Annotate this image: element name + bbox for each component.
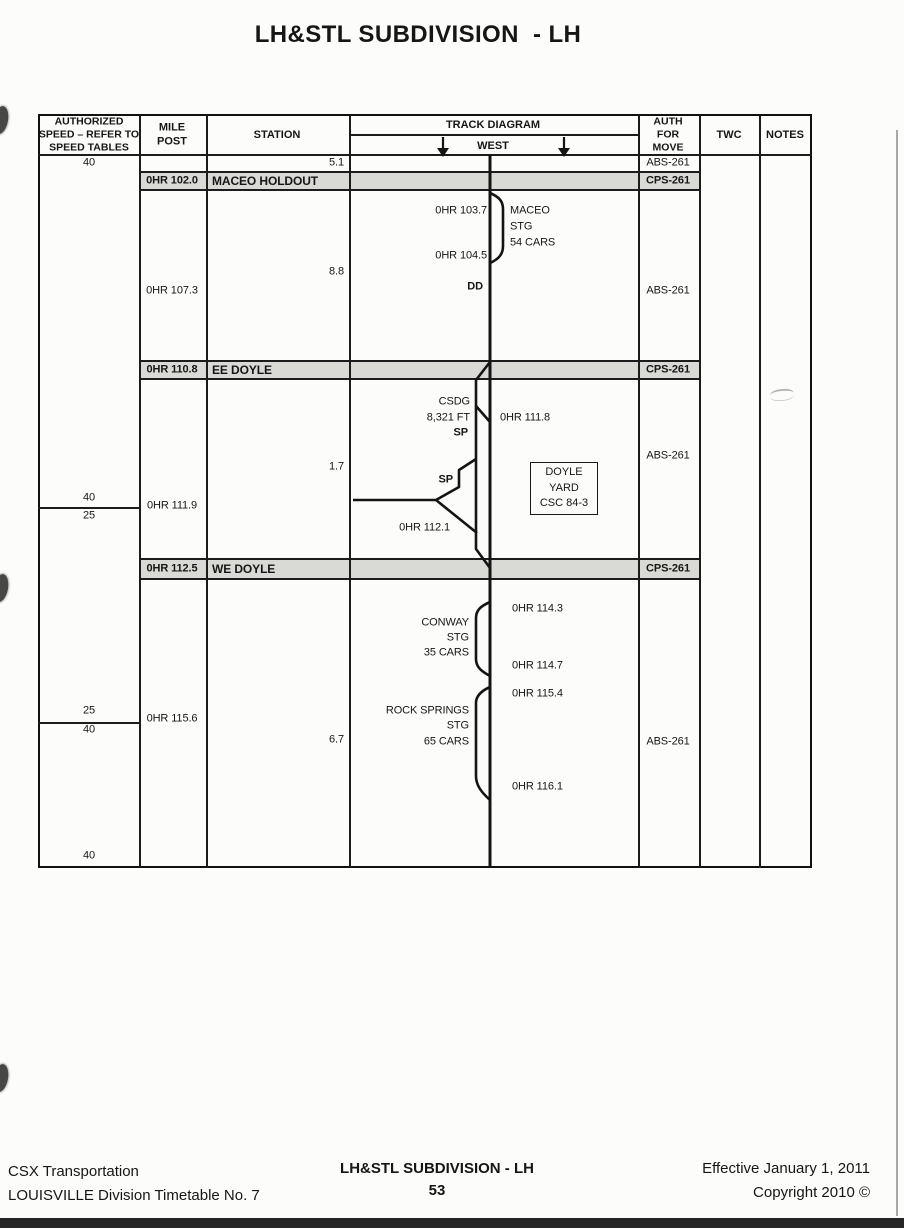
- divider-mile-station: [206, 115, 208, 868]
- band-line: [139, 558, 700, 560]
- binder-hole-mark: [0, 1063, 10, 1093]
- scan-smudge: [769, 388, 794, 402]
- siding-type: STG: [447, 720, 469, 733]
- rock-springs-siding-track: [476, 687, 490, 800]
- milepost-label: 0HR 114.3: [512, 603, 563, 616]
- station-column-header: STATION: [254, 128, 301, 142]
- distance-value: 1.7: [329, 461, 344, 474]
- binder-hole-mark: [0, 105, 10, 135]
- auth-for-move-value: ABS-261: [646, 450, 689, 463]
- table-border-right: [810, 114, 812, 868]
- band-line: [139, 189, 700, 191]
- divider-twc-notes: [759, 115, 761, 868]
- footer-company: CSX Transportation: [8, 1163, 139, 1181]
- band-line: [139, 360, 700, 362]
- milepost-label: 0HR 116.1: [512, 781, 563, 794]
- siding-length: 8,321 FT: [427, 412, 470, 425]
- doyle-siding-track: [476, 362, 490, 568]
- mile-post-value: 0HR 107.3: [146, 285, 198, 298]
- speed-value-40-below-divider2: 40: [83, 724, 95, 737]
- switch-point-label: SP: [454, 427, 468, 440]
- doyle-yard-box: DOYLE YARD CSC 84-3: [530, 462, 598, 515]
- station-mile-post: 0HR 112.5: [146, 563, 197, 576]
- yard-box-line: YARD: [549, 481, 579, 496]
- speed-value-25-below-divider1: 25: [83, 510, 95, 523]
- station-mile-post: 0HR 102.0: [146, 175, 198, 188]
- notes-column-header: NOTES: [766, 128, 804, 142]
- footer-effective-date: Effective January 1, 2011: [702, 1160, 870, 1178]
- binder-hole-mark: [0, 573, 10, 603]
- scan-edge-right: [896, 130, 898, 1216]
- siding-capacity: 54 CARS: [510, 237, 555, 250]
- auth-for-move-value: CPS-261: [646, 364, 690, 377]
- twc-column-header: TWC: [716, 128, 741, 142]
- siding-capacity: 35 CARS: [424, 647, 469, 660]
- siding-type: STG: [510, 221, 532, 234]
- band-line: [139, 378, 700, 380]
- table-border-left: [38, 114, 40, 868]
- distance-value: 5.1: [329, 157, 344, 170]
- band-line: [139, 171, 700, 173]
- siding-name: MACEO: [510, 205, 550, 218]
- auth-for-move-value: ABS-261: [646, 285, 689, 298]
- switch-point-label: SP: [439, 474, 453, 487]
- divider-speed-mile: [139, 115, 141, 868]
- timetable-page: LH&STL SUBDIVISION - LH AUTHORIZED SPEED…: [0, 0, 904, 1228]
- divider-station-track: [349, 115, 351, 868]
- siding-capacity: 65 CARS: [424, 736, 469, 749]
- yard-box-line: DOYLE: [545, 465, 582, 480]
- milepost-label: 0HR 111.8: [500, 412, 550, 425]
- band-line: [139, 578, 700, 580]
- west-arrow-right-icon: [558, 148, 570, 157]
- siding-name: CONWAY: [421, 617, 469, 630]
- maceo-siding-track: [490, 193, 503, 263]
- milepost-label: 0HR 104.5: [435, 250, 487, 263]
- milepost-label: 0HR 103.7: [435, 205, 487, 218]
- mile-post-value: 0HR 115.6: [147, 713, 198, 726]
- siding-name: CSDG: [439, 396, 470, 409]
- header-bottom-line: [38, 154, 812, 156]
- doyle-crossover-track: [476, 406, 490, 422]
- speed-value-25-above-divider2: 25: [83, 705, 95, 718]
- footer-subdivision: LH&STL SUBDIVISION - LH: [340, 1160, 534, 1178]
- distance-value: 6.7: [329, 734, 344, 747]
- milepost-label: 0HR 112.1: [399, 522, 450, 535]
- station-name: EE DOYLE: [212, 363, 272, 377]
- speed-value-40-above-divider1: 40: [83, 492, 95, 505]
- direction-header-west: WEST: [477, 139, 509, 153]
- defect-detector-label: DD: [467, 281, 483, 294]
- table-border-bottom: [38, 866, 812, 868]
- divider-auth-twc: [699, 115, 701, 868]
- station-name: MACEO HOLDOUT: [212, 174, 318, 188]
- mile-post-column-header: MILE POST: [157, 121, 187, 150]
- footer-copyright: Copyright 2010 ©: [753, 1184, 870, 1202]
- auth-for-move-value: ABS-261: [646, 157, 689, 170]
- station-mile-post: 0HR 110.8: [146, 364, 197, 377]
- siding-type: STG: [447, 632, 469, 645]
- track-diagram-subheader-line: [349, 134, 638, 136]
- speed-value-top: 40: [83, 157, 95, 170]
- auth-for-move-value: CPS-261: [646, 175, 690, 188]
- track-diagram-column-header: TRACK DIAGRAM: [446, 118, 540, 132]
- auth-for-move-column-header: AUTH FOR MOVE: [653, 115, 684, 154]
- auth-for-move-value: ABS-261: [646, 736, 689, 749]
- siding-name: ROCK SPRINGS: [386, 705, 469, 718]
- footer-page-number: 53: [429, 1182, 446, 1200]
- table-border-top: [38, 114, 812, 116]
- milepost-label: 0HR 114.7: [512, 660, 563, 673]
- mile-post-value: 0HR 111.9: [147, 500, 197, 513]
- auth-for-move-value: CPS-261: [646, 563, 690, 576]
- station-name: WE DOYLE: [212, 562, 275, 576]
- speed-value-bottom: 40: [83, 850, 95, 863]
- scan-edge-bottom: [0, 1218, 904, 1228]
- milepost-label: 0HR 115.4: [512, 688, 563, 701]
- distance-value: 8.8: [329, 266, 344, 279]
- speed-column-header: AUTHORIZED SPEED – REFER TO SPEED TABLES: [39, 115, 139, 154]
- speed-divider-1: [38, 507, 140, 509]
- footer-timetable: LOUISVILLE Division Timetable No. 7: [8, 1187, 260, 1205]
- page-title: LH&STL SUBDIVISION - LH: [255, 21, 582, 49]
- yard-box-line: CSC 84-3: [540, 496, 588, 511]
- conway-siding-track: [476, 602, 490, 676]
- divider-track-auth: [638, 115, 640, 868]
- west-arrow-left-icon: [437, 148, 449, 157]
